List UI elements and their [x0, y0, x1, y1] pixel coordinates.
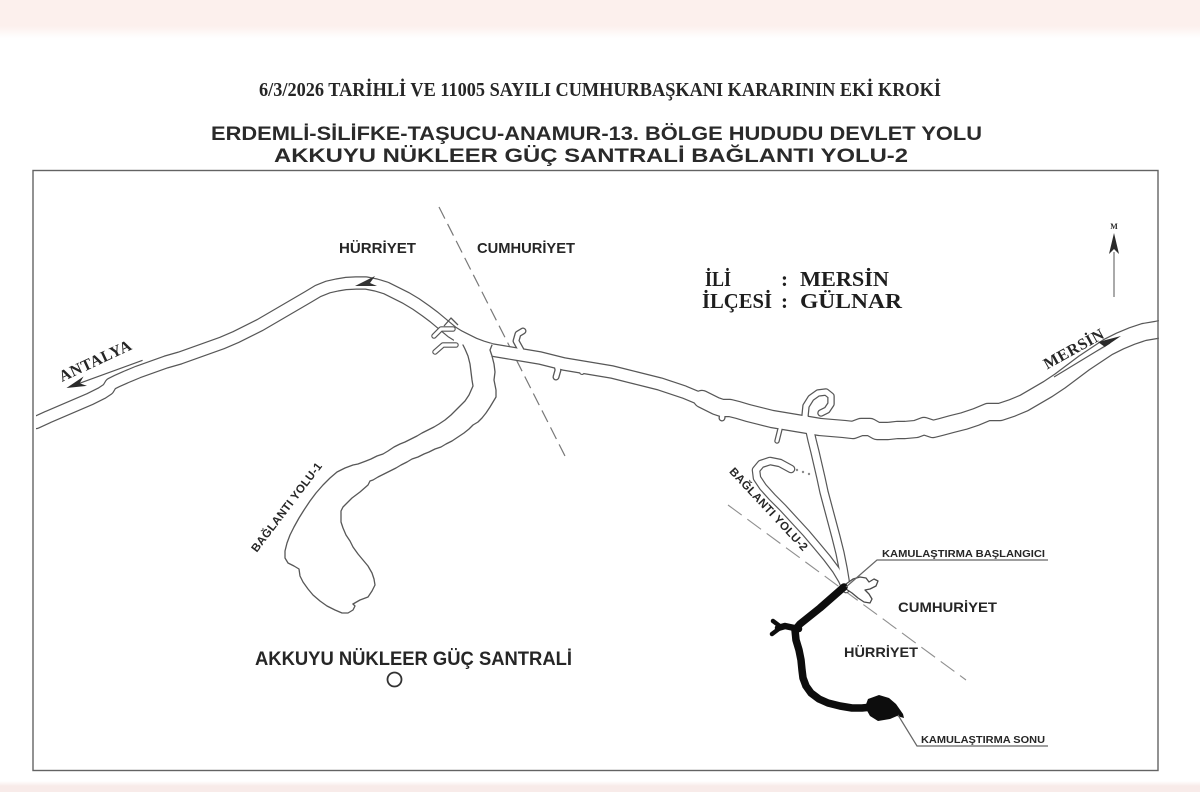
svg-text:AKKUYU NÜKLEER GÜÇ SANTRALİ BA: AKKUYU NÜKLEER GÜÇ SANTRALİ BAĞLANTI YOL…	[274, 143, 908, 167]
svg-text::: :	[781, 289, 788, 313]
svg-text:KAMULAŞTIRMA SONU: KAMULAŞTIRMA SONU	[921, 734, 1045, 746]
svg-text::: :	[781, 267, 788, 291]
svg-text:M: M	[1110, 222, 1118, 231]
svg-text:KAMULAŞTIRMA BAŞLANGICI: KAMULAŞTIRMA BAŞLANGICI	[882, 548, 1045, 560]
svg-text:MERSİN: MERSİN	[800, 267, 889, 291]
svg-text:AKKUYU NÜKLEER GÜÇ SANTRALİ: AKKUYU NÜKLEER GÜÇ SANTRALİ	[255, 649, 572, 670]
svg-text:HÜRRİYET: HÜRRİYET	[844, 644, 918, 660]
svg-text:6/3/2026 TARİHLİ VE 11005 SAYI: 6/3/2026 TARİHLİ VE 11005 SAYILI CUMHURB…	[259, 77, 941, 101]
svg-text:CUMHURİYET: CUMHURİYET	[898, 599, 997, 615]
svg-text:İLİ: İLİ	[705, 267, 731, 291]
svg-text:HÜRRİYET: HÜRRİYET	[339, 240, 416, 257]
svg-text:İLÇESİ: İLÇESİ	[702, 289, 772, 313]
svg-text:ERDEMLİ-SİLİFKE-TAŞUCU-ANAMUR-: ERDEMLİ-SİLİFKE-TAŞUCU-ANAMUR-13. BÖLGE …	[211, 122, 982, 145]
svg-text:CUMHURİYET: CUMHURİYET	[477, 240, 575, 257]
svg-text:GÜLNAR: GÜLNAR	[800, 289, 903, 313]
